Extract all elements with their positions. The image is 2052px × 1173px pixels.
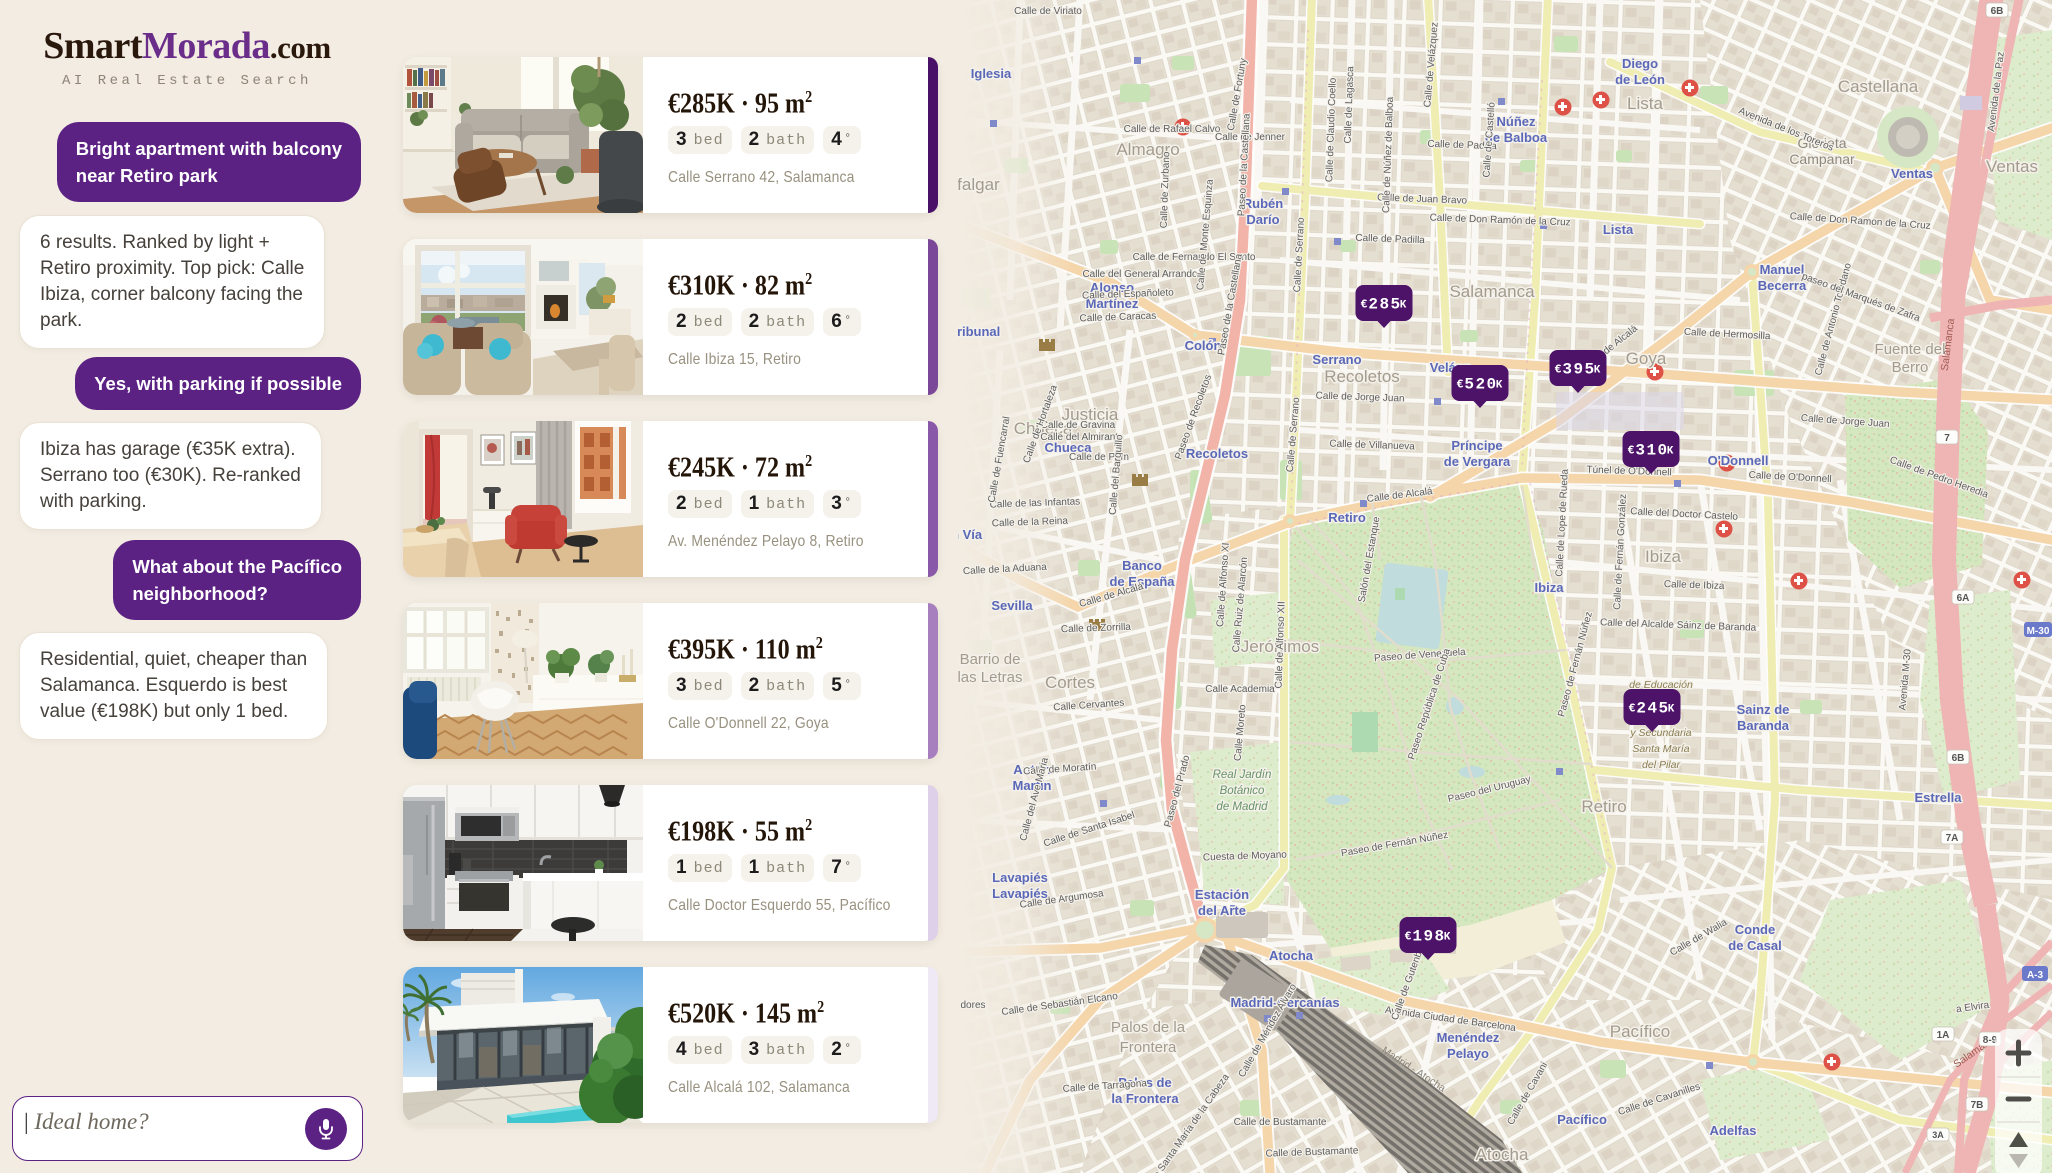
svg-text:K: K	[1668, 704, 1675, 716]
svg-text:Lista: Lista	[1627, 94, 1663, 113]
svg-text:520: 520	[1464, 376, 1497, 394]
svg-text:de Casal: de Casal	[1728, 938, 1781, 953]
svg-text:Barrio de: Barrio de	[960, 651, 1021, 668]
svg-text:Santa María: Santa María	[1632, 743, 1689, 755]
svg-text:285: 285	[1368, 296, 1401, 314]
svg-text:dores: dores	[960, 1000, 985, 1011]
svg-text:Tribunal: Tribunal	[958, 324, 1000, 339]
svg-text:la Frontera: la Frontera	[1111, 1091, 1179, 1106]
svg-text:€: €	[1628, 445, 1635, 458]
svg-text:Baranda: Baranda	[1737, 718, 1790, 733]
svg-text:Calle Academia: Calle Academia	[1205, 684, 1275, 695]
svg-text:y Secundaria: y Secundaria	[1629, 727, 1691, 739]
svg-text:del Pilar: del Pilar	[1642, 759, 1680, 771]
svg-text:Lavapiés: Lavapiés	[992, 870, 1048, 885]
svg-text:Menéndez: Menéndez	[1437, 1030, 1500, 1045]
svg-text:Príncipe: Príncipe	[1451, 438, 1502, 453]
svg-text:M-30: M-30	[2027, 626, 2050, 637]
svg-text:Calle de Ibiza: Calle de Ibiza	[1664, 579, 1725, 592]
svg-text:1A: 1A	[1937, 1030, 1950, 1041]
svg-text:Pacífico: Pacífico	[1557, 1112, 1607, 1127]
svg-text:€: €	[1457, 379, 1464, 392]
svg-text:Berro: Berro	[1892, 359, 1929, 376]
svg-text:6B: 6B	[1952, 753, 1965, 764]
svg-text:Pelayo: Pelayo	[1447, 1046, 1489, 1061]
svg-text:Campanar: Campanar	[1789, 151, 1855, 167]
svg-text:€: €	[1361, 299, 1368, 312]
svg-text:6A: 6A	[1957, 593, 1970, 604]
svg-text:Darío: Darío	[1246, 212, 1279, 227]
svg-text:Cortes: Cortes	[1045, 673, 1095, 692]
svg-text:Salamanca: Salamanca	[1449, 282, 1535, 301]
svg-text:Palos de la: Palos de la	[1111, 1019, 1186, 1036]
svg-text:Estación: Estación	[1195, 887, 1249, 902]
svg-text:Ventas: Ventas	[1891, 166, 1933, 181]
svg-text:Real Jardín: Real Jardín	[1213, 769, 1272, 781]
svg-text:7B: 7B	[1971, 1100, 1984, 1111]
svg-text:de Madrid: de Madrid	[1216, 801, 1268, 813]
svg-text:Serrano: Serrano	[1312, 352, 1361, 367]
svg-text:6B: 6B	[1991, 6, 2004, 17]
svg-text:Atocha: Atocha	[1476, 1145, 1529, 1164]
svg-text:K: K	[1400, 300, 1407, 312]
svg-text:an Vía: an Vía	[958, 527, 983, 542]
svg-text:Retiro: Retiro	[1581, 797, 1626, 816]
svg-text:Ibiza: Ibiza	[1645, 547, 1681, 566]
svg-text:€: €	[1405, 931, 1412, 944]
svg-text:Manuel: Manuel	[1760, 262, 1805, 277]
svg-text:7A: 7A	[1946, 833, 1959, 844]
svg-text:Calle del General Arrando: Calle del General Arrando	[1082, 269, 1198, 280]
svg-text:Adelfas: Adelfas	[1710, 1123, 1757, 1138]
svg-text:7: 7	[1944, 433, 1950, 444]
svg-text:Núñez: Núñez	[1497, 114, 1537, 129]
svg-text:245: 245	[1636, 700, 1669, 718]
svg-text:Castellana: Castellana	[1838, 77, 1919, 96]
svg-text:Recoletos: Recoletos	[1324, 367, 1400, 386]
svg-text:€: €	[1555, 364, 1562, 377]
svg-text:Trafalgar: Trafalgar	[958, 175, 1000, 194]
svg-text:Fuente del: Fuente del	[1875, 341, 1946, 358]
svg-text:310: 310	[1635, 442, 1668, 460]
svg-text:K: K	[1496, 380, 1503, 392]
svg-text:Lista: Lista	[1603, 222, 1634, 237]
svg-text:Atocha: Atocha	[1269, 948, 1314, 963]
svg-text:A-3: A-3	[2027, 970, 2044, 981]
svg-text:198: 198	[1412, 928, 1445, 946]
svg-text:de León: de León	[1615, 72, 1665, 87]
svg-text:Retiro: Retiro	[1328, 510, 1366, 525]
svg-text:€: €	[1629, 703, 1636, 716]
svg-text:Ibiza: Ibiza	[1535, 580, 1565, 595]
svg-text:Calle de Gravina: Calle de Gravina	[1041, 420, 1116, 431]
svg-text:K: K	[1444, 932, 1451, 944]
svg-text:de Vergara: de Vergara	[1444, 454, 1511, 469]
svg-text:Recoletos: Recoletos	[1186, 446, 1248, 461]
svg-text:3A: 3A	[1932, 1130, 1944, 1140]
svg-text:Calle de Rafael Calvo: Calle de Rafael Calvo	[1124, 124, 1221, 135]
svg-text:Iglesia: Iglesia	[971, 66, 1012, 81]
svg-text:Rubén: Rubén	[1243, 196, 1284, 211]
svg-text:Botánico: Botánico	[1220, 785, 1265, 797]
svg-text:Calle de Bustamante: Calle de Bustamante	[1234, 1117, 1327, 1128]
svg-text:Calle de Viriato: Calle de Viriato	[1014, 6, 1082, 17]
svg-text:Banco: Banco	[1122, 558, 1162, 573]
svg-text:Goya: Goya	[1626, 349, 1667, 368]
svg-text:Ventas: Ventas	[1986, 157, 2038, 176]
svg-text:del Arte: del Arte	[1198, 903, 1246, 918]
svg-text:K: K	[1594, 365, 1601, 377]
svg-text:las Letras: las Letras	[958, 669, 1023, 686]
svg-text:Conde: Conde	[1735, 922, 1775, 937]
svg-text:Frontera: Frontera	[1120, 1039, 1177, 1056]
svg-text:K: K	[1667, 446, 1674, 458]
svg-text:Sainz de: Sainz de	[1737, 702, 1790, 717]
svg-text:Estrella: Estrella	[1915, 790, 1963, 805]
svg-text:Sevilla: Sevilla	[991, 598, 1033, 613]
svg-text:Pacífico: Pacífico	[1610, 1022, 1670, 1041]
svg-text:395: 395	[1562, 361, 1595, 379]
svg-text:Diego: Diego	[1622, 56, 1658, 71]
svg-text:Calle del Almirante: Calle del Almirante	[1040, 432, 1124, 443]
svg-text:O'Donnell: O'Donnell	[1708, 453, 1769, 468]
